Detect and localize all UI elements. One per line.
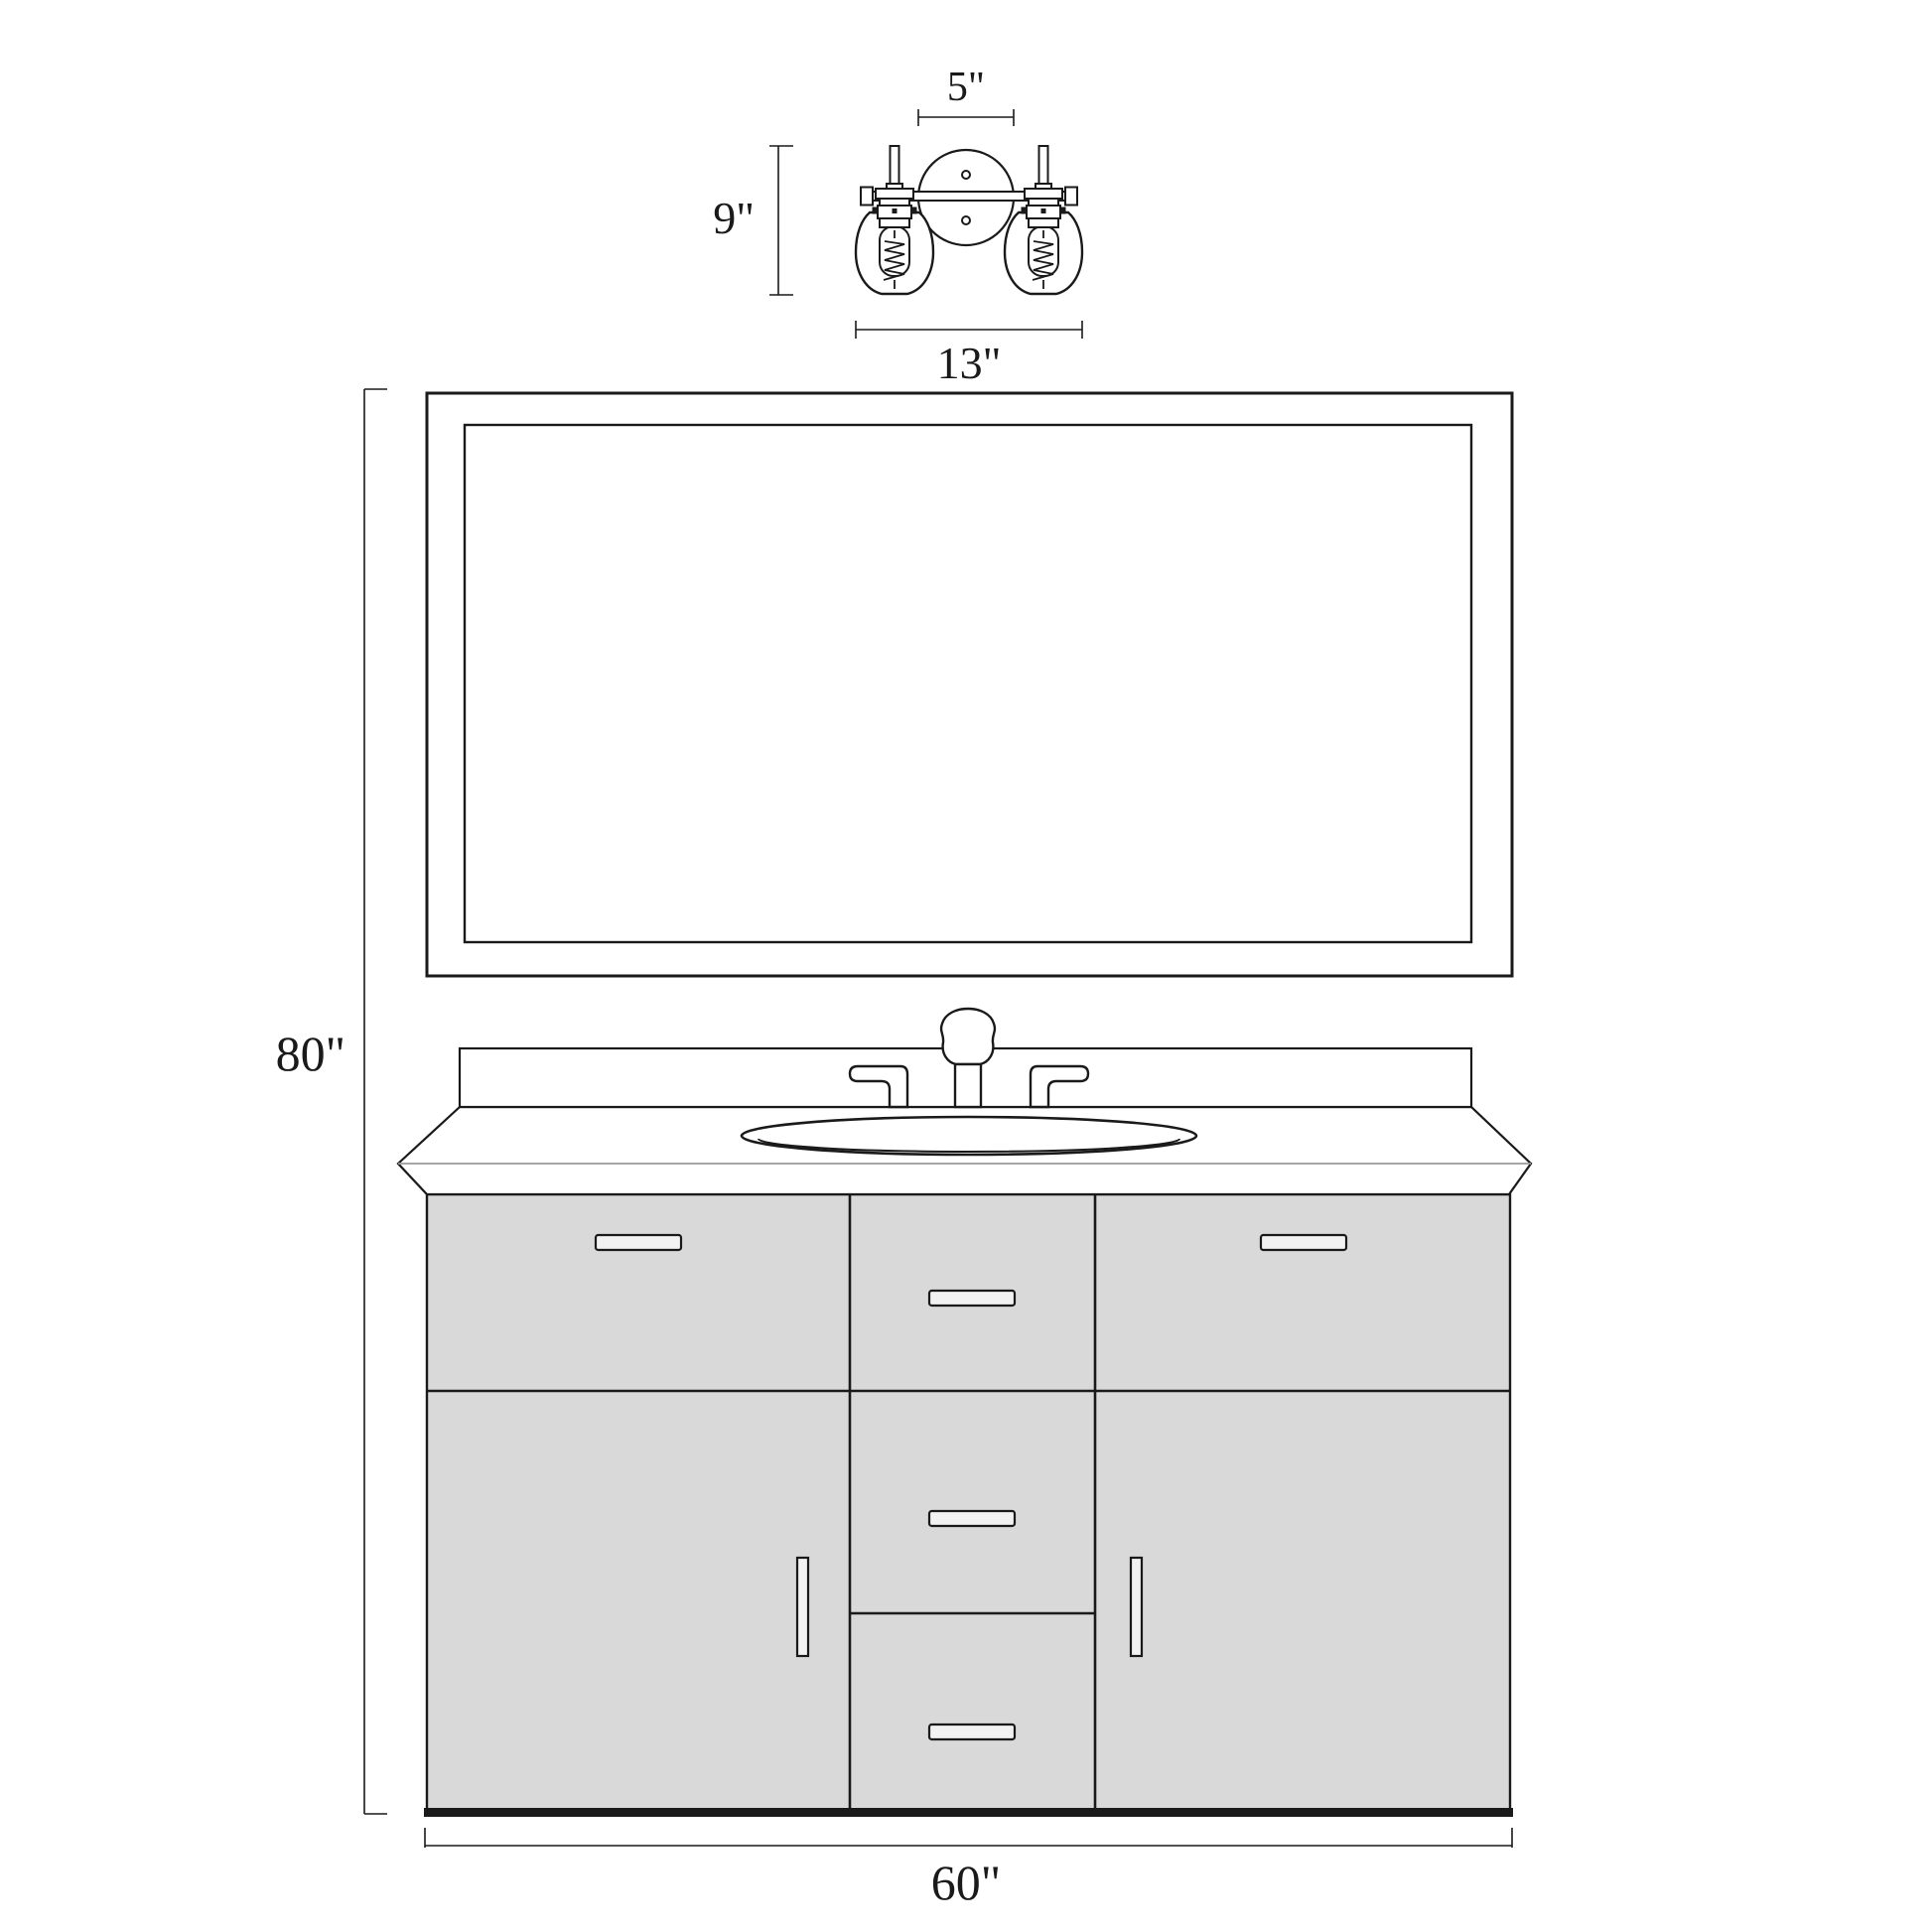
cabinet-body [427,1194,1510,1812]
drawer-pull-middle-1 [929,1291,1015,1306]
light-fixture [856,146,1082,294]
drawer-pull-top-left [596,1235,681,1250]
door-pull-right [1131,1558,1142,1656]
diagram-canvas: 5" 9" 13" 80" [0,0,1932,1932]
sconce-left [856,146,933,294]
bar-end-cap-right [1065,188,1077,206]
dimension-line-9in [769,146,793,295]
dimension-label-80in: 80" [276,1026,345,1081]
dimension-line-60in [425,1828,1512,1848]
dimension-line-80in [364,389,387,1814]
vanity-dimension-diagram: 5" 9" 13" 80" [0,0,1932,1932]
drawer-pull-top-right [1261,1235,1346,1250]
mirror [427,393,1512,976]
bar-end-cap-left [861,188,873,206]
sconce-right [1005,146,1082,294]
dimension-line-5in [918,109,1014,126]
dimension-fixture-backplate-width: 5" [918,65,1014,126]
sink-basin [742,1117,1196,1155]
dimension-vanity-width: 60" [425,1828,1512,1910]
dimension-fixture-height: 9" [713,146,793,295]
faucet-spout-top [941,1009,995,1064]
mirror-inner-frame [465,425,1471,942]
dimension-label-60in: 60" [931,1855,1001,1910]
drawer-pull-middle-3 [929,1725,1015,1739]
drawer-pull-middle-2 [929,1511,1015,1526]
dimension-line-13in [856,321,1082,339]
dimension-label-9in: 9" [713,193,755,243]
dimension-fixture-width: 13" [856,321,1082,388]
dimension-overall-height: 80" [276,389,387,1814]
dimension-label-5in: 5" [947,65,985,110]
dimension-label-13in: 13" [937,338,1002,388]
vanity-cabinet [424,1194,1513,1817]
cabinet-baseboard [424,1808,1513,1817]
door-pull-left [797,1558,808,1656]
faucet-spout-stem [955,1064,981,1107]
